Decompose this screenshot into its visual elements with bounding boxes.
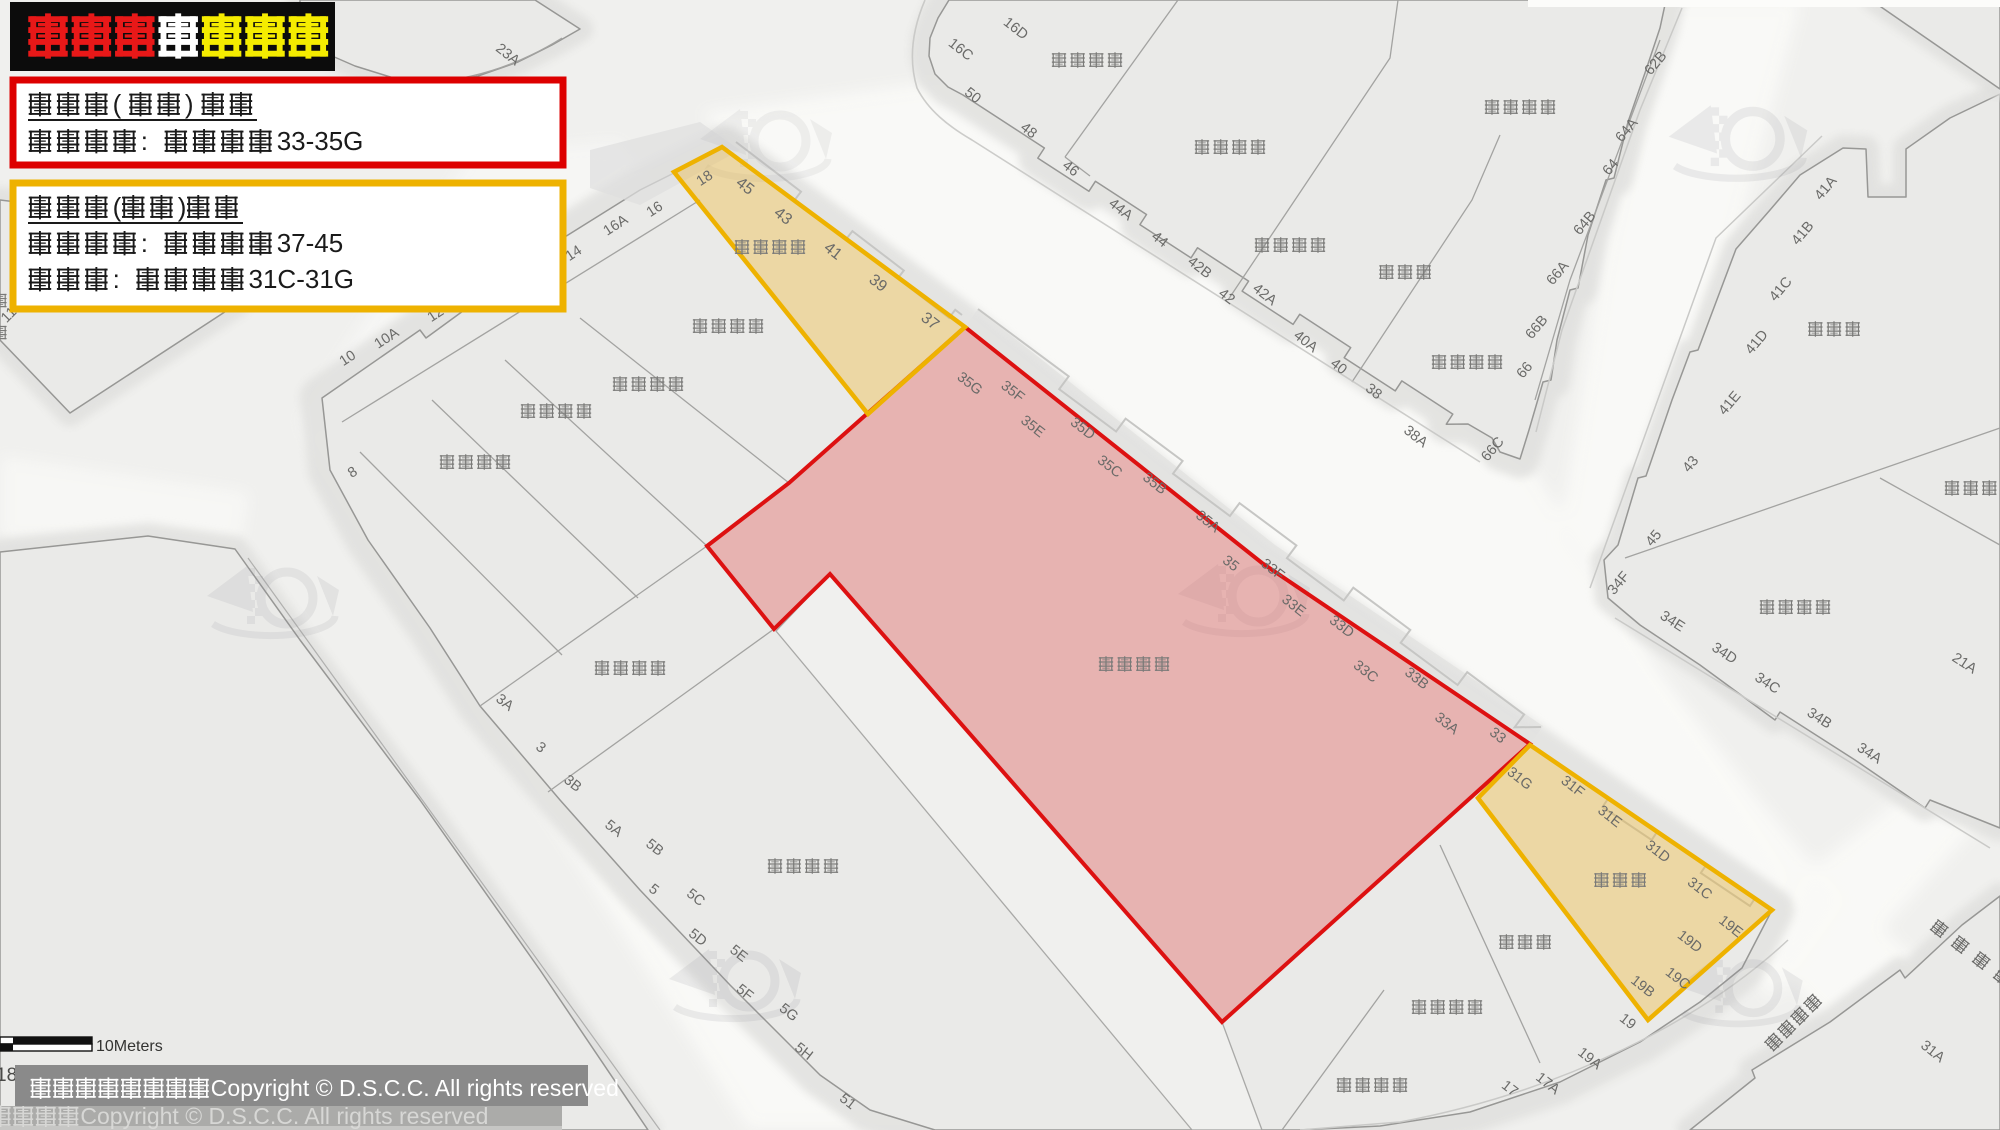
svg-text::: : [113,264,120,294]
svg-text:10Meters: 10Meters [96,1038,163,1055]
svg-text:(: ( [113,192,122,222]
svg-text:18: 18 [0,1065,17,1086]
svg-text:(: ( [113,89,122,119]
svg-text:31C-31G: 31C-31G [249,264,355,294]
svg-text::: : [141,228,148,258]
svg-text::: : [141,126,148,156]
svg-text:37-45: 37-45 [277,228,344,258]
svg-text:): ) [185,89,194,119]
svg-text:): ) [178,192,187,222]
svg-text:Copyright © D.S.C.C. All right: Copyright © D.S.C.C. All rights reserved [80,1103,488,1129]
svg-text:33-35G: 33-35G [277,126,364,156]
svg-text:Copyright © D.S.C.C. All right: Copyright © D.S.C.C. All rights reserved [211,1075,619,1101]
